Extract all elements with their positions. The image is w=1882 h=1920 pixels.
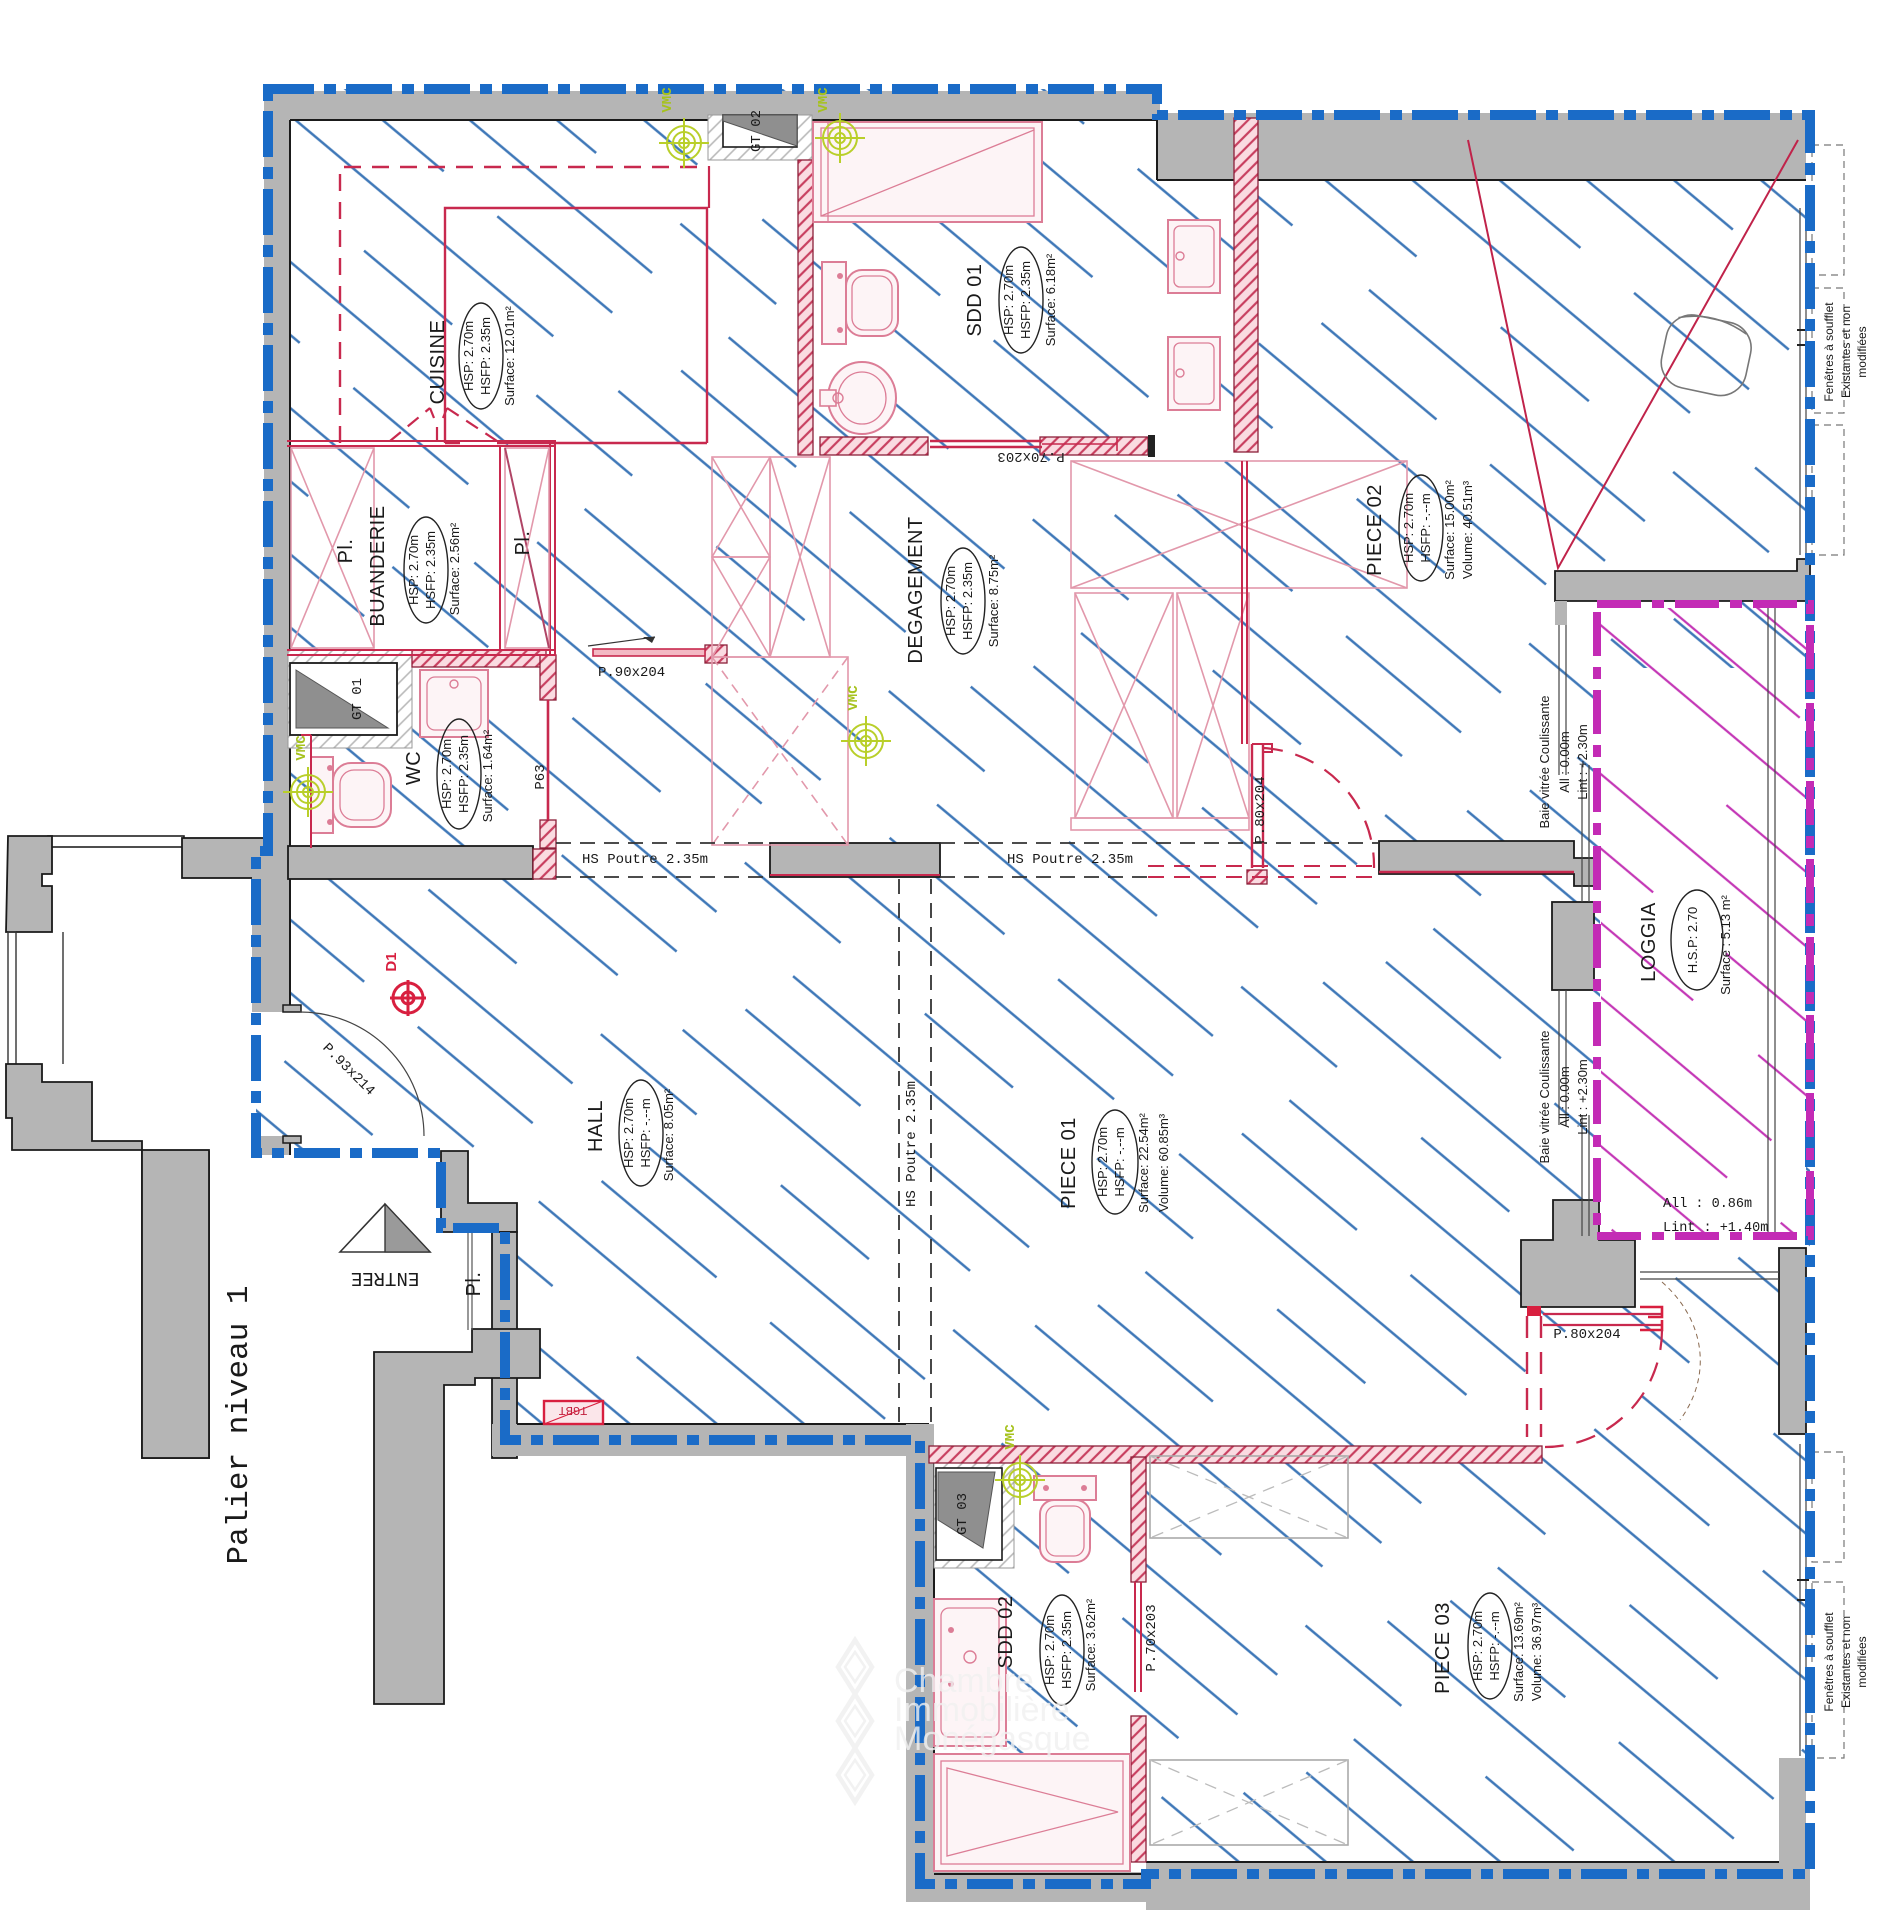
svg-text:All : 0.00m: All : 0.00m [1557,731,1572,792]
svg-text:HSFP: -.--m: HSFP: -.--m [1487,1611,1502,1680]
svg-text:Volume: 60.85m³: Volume: 60.85m³ [1156,1113,1171,1212]
svg-text:Surface : 5.13 m²: Surface : 5.13 m² [1718,894,1733,994]
svg-text:Surface: 15.00m²: Surface: 15.00m² [1442,479,1457,579]
svg-text:Fenêtres à soufflet: Fenêtres à soufflet [1822,302,1836,402]
svg-text:VMC: VMC [1003,1424,1019,1450]
svg-text:HSFP: 2.35m: HSFP: 2.35m [456,735,471,813]
svg-text:LOGGIA: LOGGIA [1638,902,1660,982]
svg-text:VMC: VMC [660,87,676,113]
svg-text:HS Poutre 2.35m: HS Poutre 2.35m [904,1081,920,1207]
svg-text:Pl.: Pl. [335,539,357,564]
svg-text:HSFP: 2.35m: HSFP: 2.35m [1018,261,1033,339]
svg-text:P.80x204: P.80x204 [1253,776,1269,843]
svg-text:Surface: 6.18m²: Surface: 6.18m² [1043,253,1058,346]
svg-text:D1: D1 [383,952,400,971]
svg-text:HSFP: -.--m: HSFP: -.--m [1418,493,1433,562]
svg-text:DEGAGEMENT: DEGAGEMENT [905,516,927,663]
svg-text:Palier niveau 1: Palier niveau 1 [222,1285,257,1564]
svg-text:HSP: 2.70m: HSP: 2.70m [1401,493,1416,563]
svg-text:Surface: 12.01m²: Surface: 12.01m² [502,305,517,405]
svg-text:Surface: 13.69m²: Surface: 13.69m² [1511,1601,1526,1701]
svg-text:P.70x203: P.70x203 [1144,1604,1160,1671]
svg-text:modifiées: modifiées [1855,326,1869,377]
svg-text:Baie vitrée Coulissante: Baie vitrée Coulissante [1537,696,1552,829]
svg-text:TGBT: TGBT [559,1403,588,1417]
svg-text:WC: WC [403,751,425,785]
svg-text:Surface: 1.64m²: Surface: 1.64m² [480,729,495,822]
svg-text:Existantes et non: Existantes et non [1839,306,1853,398]
svg-text:All : 0.86m: All : 0.86m [1663,1197,1752,1212]
svg-text:HS Poutre 2.35m: HS Poutre 2.35m [1007,852,1133,868]
svg-text:VMC: VMC [846,685,862,711]
svg-text:Surface: 8.75m²: Surface: 8.75m² [986,554,1001,647]
svg-text:HSFP: -.--m: HSFP: -.--m [638,1098,653,1167]
svg-text:HSP: 2.70m: HSP: 2.70m [1001,265,1016,335]
svg-text:HSFP: 2.35m: HSFP: 2.35m [1059,1611,1074,1689]
svg-text:Existantes et non: Existantes et non [1839,1616,1853,1708]
svg-text:GT 01: GT 01 [350,678,366,720]
svg-text:Surface: 2.56m²: Surface: 2.56m² [447,522,462,615]
svg-text:Surface: 3.62m²: Surface: 3.62m² [1083,1598,1098,1691]
svg-text:Lint : +1.40m: Lint : +1.40m [1663,1221,1768,1236]
svg-text:Surface: 8.05m²: Surface: 8.05m² [661,1088,676,1181]
svg-text:PIECE 02: PIECE 02 [1364,484,1386,576]
svg-text:HSP: 2.70m: HSP: 2.70m [1095,1127,1110,1197]
svg-text:VMC: VMC [816,87,832,113]
svg-text:Pl.: Pl. [463,1272,485,1297]
svg-text:CUISINE: CUISINE [427,320,449,405]
svg-text:Lint : +2.30m: Lint : +2.30m [1575,1059,1590,1135]
svg-text:GT 02: GT 02 [749,110,765,152]
svg-text:Fenêtres à soufflet: Fenêtres à soufflet [1822,1612,1836,1712]
svg-text:P.90x204: P.90x204 [598,665,665,681]
svg-text:PIECE 01: PIECE 01 [1058,1117,1080,1209]
svg-text:HSP: 2.70m: HSP: 2.70m [439,739,454,809]
svg-text:P63: P63 [533,764,549,789]
svg-text:Pl.: Pl. [512,531,534,556]
svg-text:BUANDERIE: BUANDERIE [367,505,389,626]
svg-text:All : 0.00m: All : 0.00m [1557,1066,1572,1127]
svg-text:H.S.P: 2.70: H.S.P: 2.70 [1685,907,1700,973]
svg-text:HSP: 2.70m: HSP: 2.70m [943,566,958,636]
svg-text:ENTREE: ENTREE [351,1267,419,1289]
svg-text:HALL: HALL [585,1100,607,1152]
svg-text:HSP: 2.70m: HSP: 2.70m [406,535,421,605]
svg-text:modifiées: modifiées [1855,1636,1869,1687]
svg-text:PIECE 03: PIECE 03 [1432,1602,1454,1694]
svg-text:SDD 01: SDD 01 [964,263,986,336]
svg-text:HSFP: 2.35m: HSFP: 2.35m [423,531,438,609]
svg-text:GT 03: GT 03 [955,1493,971,1535]
svg-text:HS Poutre 2.35m: HS Poutre 2.35m [582,852,708,868]
svg-text:Baie vitrée Coulissante: Baie vitrée Coulissante [1537,1031,1552,1164]
svg-text:HSP: 2.70m: HSP: 2.70m [1470,1611,1485,1681]
svg-text:Surface: 22.54m²: Surface: 22.54m² [1136,1112,1151,1212]
svg-text:HSP: 2.70m: HSP: 2.70m [1042,1615,1057,1685]
svg-text:P.70x203: P.70x203 [997,448,1064,464]
svg-text:Monégasque: Monégasque [894,1720,1091,1758]
svg-text:HSFP: 2.35m: HSFP: 2.35m [960,562,975,640]
svg-text:P.80x204: P.80x204 [1553,1327,1620,1343]
svg-text:VMC: VMC [294,735,310,761]
svg-text:HSP: 2.70m: HSP: 2.70m [621,1098,636,1168]
svg-text:Volume: 36.97m³: Volume: 36.97m³ [1529,1602,1544,1701]
svg-text:Lint : +2.30m: Lint : +2.30m [1575,724,1590,800]
svg-text:Volume: 40.51m³: Volume: 40.51m³ [1460,480,1475,579]
svg-text:HSFP: 2.35m: HSFP: 2.35m [478,317,493,395]
svg-text:SDD 02: SDD 02 [995,1595,1017,1668]
svg-text:HSP: 2.70m: HSP: 2.70m [461,321,476,391]
svg-text:HSFP: -.--m: HSFP: -.--m [1112,1127,1127,1196]
